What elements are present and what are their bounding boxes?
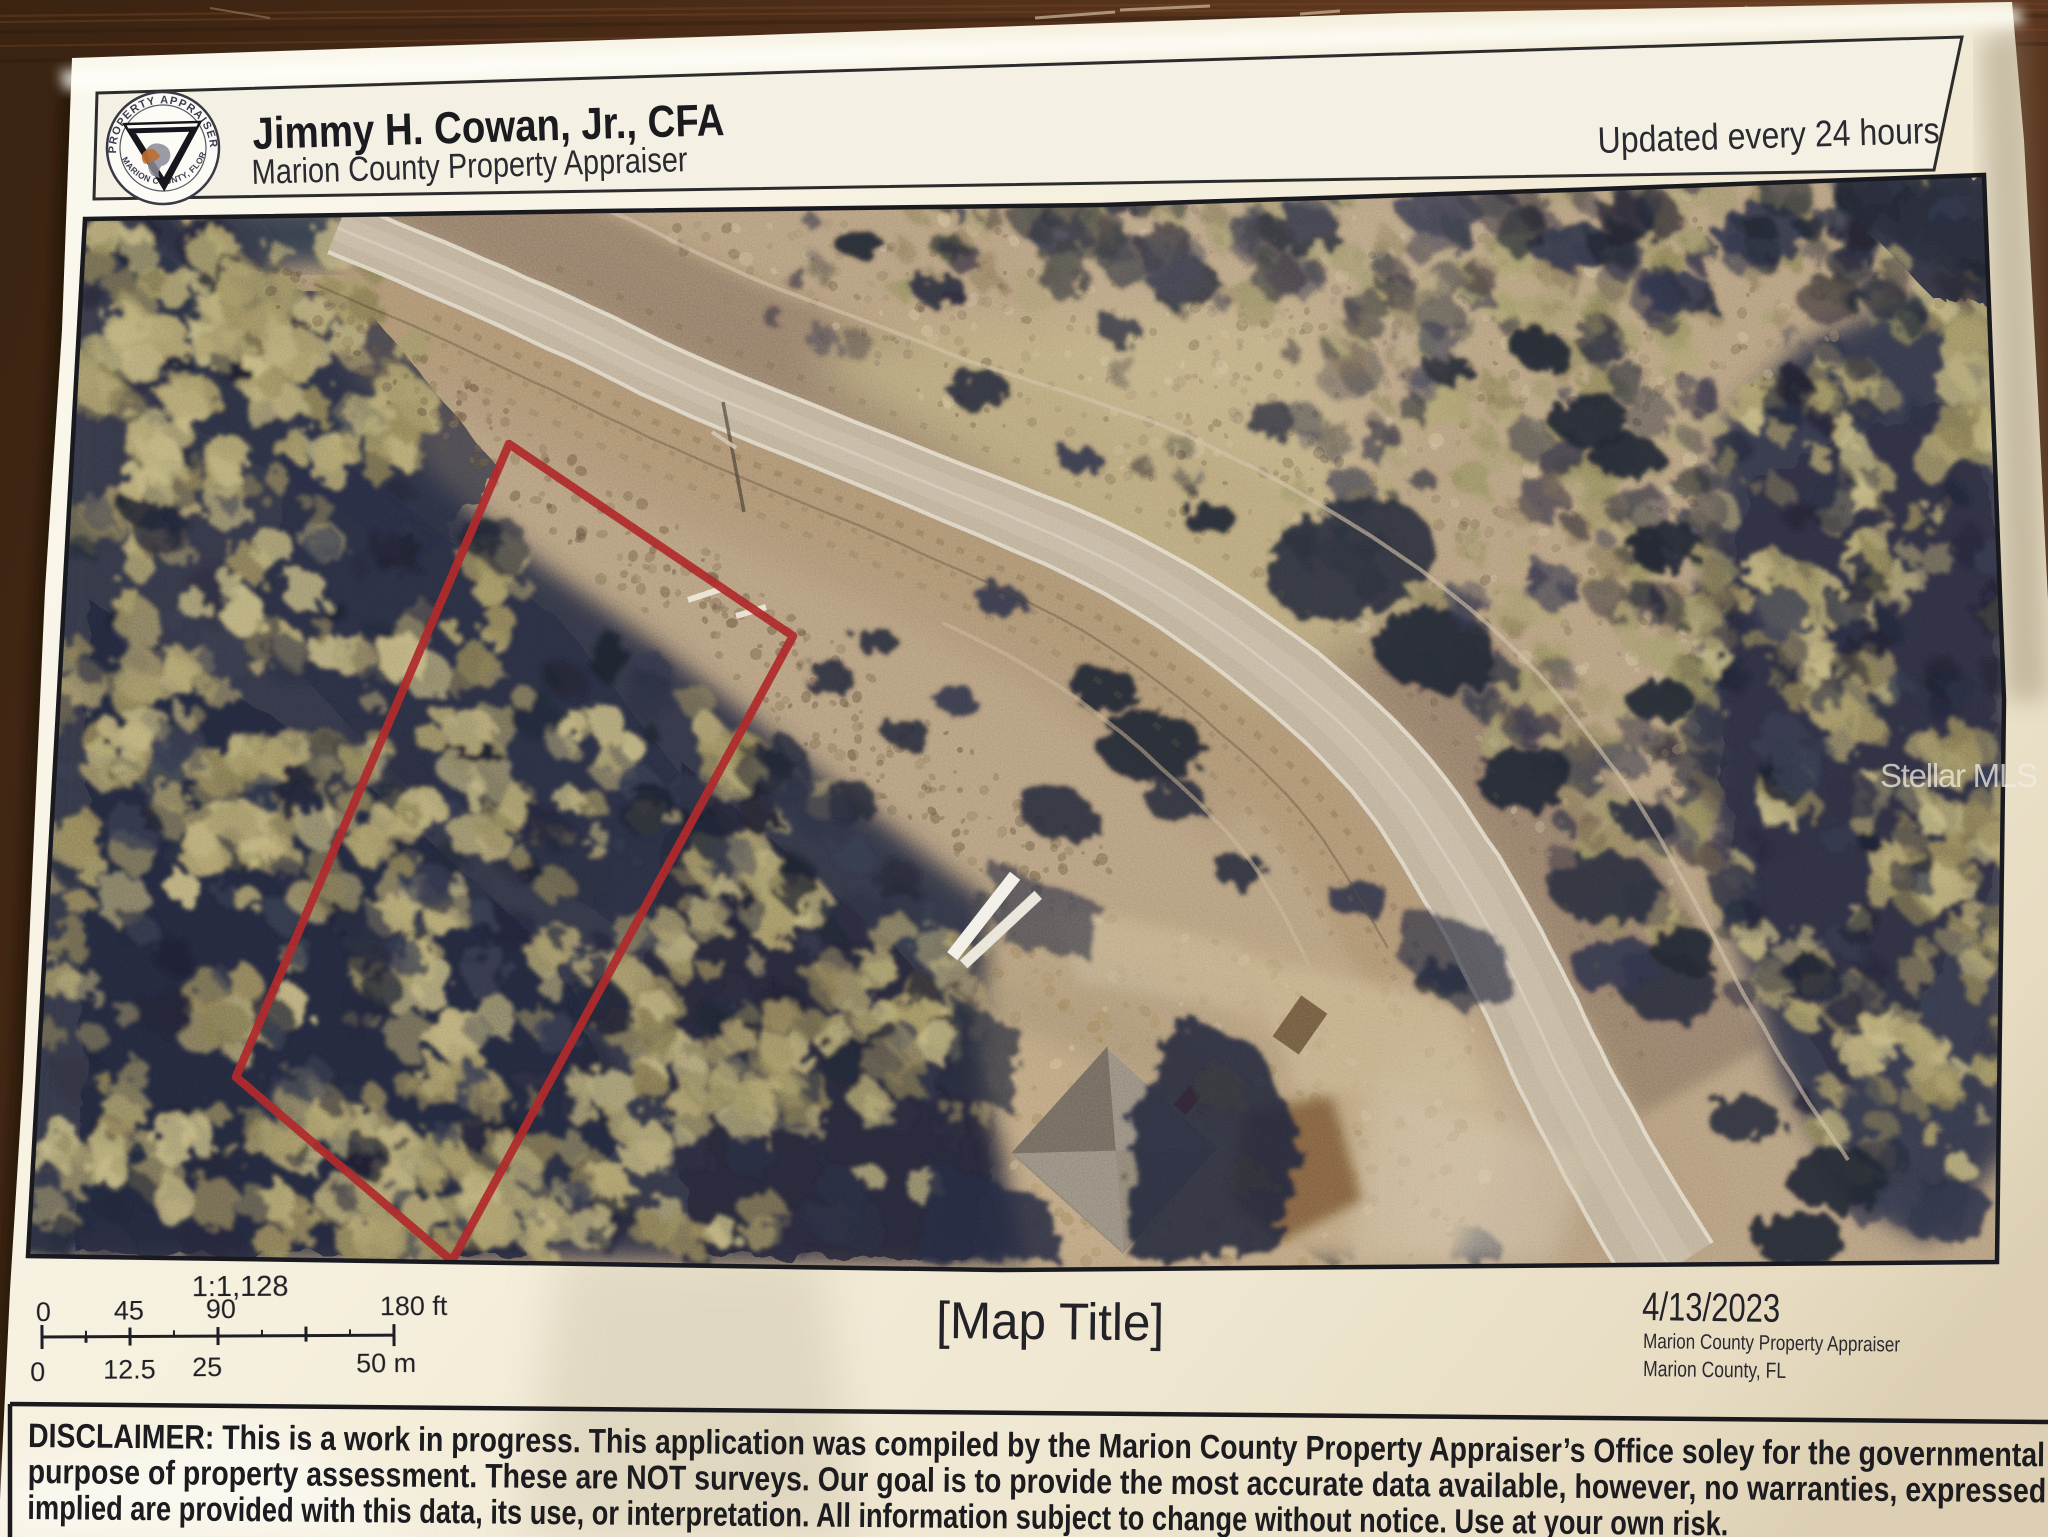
svg-text:Marion County, FL: Marion County, FL	[1643, 1356, 1786, 1383]
svg-text:90: 90	[206, 1294, 236, 1324]
svg-text:0: 0	[30, 1357, 45, 1387]
svg-text:Marion County Property Apprais: Marion County Property Appraiser	[1643, 1330, 1900, 1357]
svg-text:0: 0	[36, 1297, 51, 1327]
svg-text:Stellar MLS: Stellar MLS	[1880, 757, 2038, 794]
svg-text:12.5: 12.5	[103, 1354, 156, 1384]
svg-text:50 m: 50 m	[356, 1348, 416, 1378]
svg-text:180 ft: 180 ft	[380, 1291, 448, 1321]
svg-text:45: 45	[114, 1295, 144, 1325]
svg-text:4/13/2023: 4/13/2023	[1642, 1285, 1781, 1331]
svg-text:[Map Title]: [Map Title]	[936, 1292, 1165, 1352]
svg-text:25: 25	[192, 1352, 222, 1382]
